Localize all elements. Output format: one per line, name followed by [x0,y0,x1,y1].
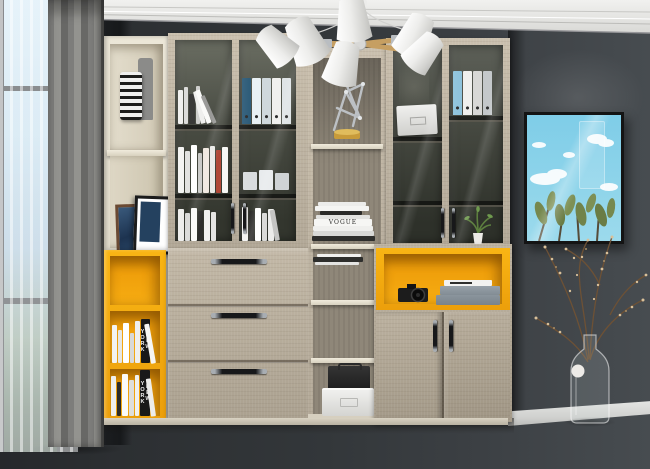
book-spine [129,380,134,416]
book-spine [130,333,134,363]
white-box [322,388,374,416]
storage-box-stack [322,366,374,414]
book-spine [118,330,122,363]
flat-book-stack [313,254,363,265]
book-spine [135,321,140,363]
drawer-handle [211,259,267,264]
chandelier [253,0,467,118]
door-seam [442,312,444,420]
door-handle [441,208,444,238]
book-row: NEW YORK [111,370,159,416]
black-box-handle [338,363,362,370]
book-spine [122,374,128,416]
yellow-cubby-interior [384,254,502,304]
drawer-handle [211,313,267,318]
white-book [444,280,492,286]
lower-cabinet-right [374,244,512,422]
drape-curtain [48,0,104,447]
book-spine [123,323,129,363]
door-handle [243,203,246,234]
yellow-cubby-books-upper: NEW YORK [110,311,160,363]
cream-cubby-frames [110,156,163,248]
magazine [312,236,375,241]
striped-vase [120,72,142,120]
yellow-cubby-empty [110,256,160,305]
dried-branch-vase [520,225,650,430]
denim-book [436,295,500,305]
ornament-ball [572,365,585,378]
door-handle [452,208,455,238]
denim-book [440,286,500,295]
yellow-display-cubby [376,248,510,310]
glass-door-pane [175,40,232,241]
box-label [340,398,358,407]
cabinet-door [444,312,510,420]
art-glass-reflection [527,115,621,241]
door-handle [433,320,437,352]
photo-frame-art [139,202,160,243]
magazine-stack: VOGUE [312,202,376,245]
drawer-unit [168,248,310,420]
book-row: NEW YORK [112,319,159,363]
book-spine [112,325,117,363]
glass-reflection [175,40,232,241]
magazine [315,262,359,265]
yellow-cubby-books-lower: NEW YORK [110,369,160,416]
door-handle [449,320,453,352]
photo-frame-black [133,195,173,254]
cream-cubby-top [110,44,163,150]
drawer-handle [211,369,267,374]
yellow-cubby-column: NEW YORK NEW YORK [104,250,166,420]
drawer-seam [168,304,310,307]
door-handle [231,203,234,234]
camera [398,282,432,304]
plinth [104,418,508,425]
room-photo: NEW YORK NEW YORK [0,0,650,469]
drawer-seam [168,360,310,363]
book-spine [111,376,116,416]
shelf [311,300,383,305]
magazine-vogue: VOGUE [314,219,372,226]
book-spine [117,382,121,416]
book-spine [135,375,139,416]
book-label [450,282,472,284]
